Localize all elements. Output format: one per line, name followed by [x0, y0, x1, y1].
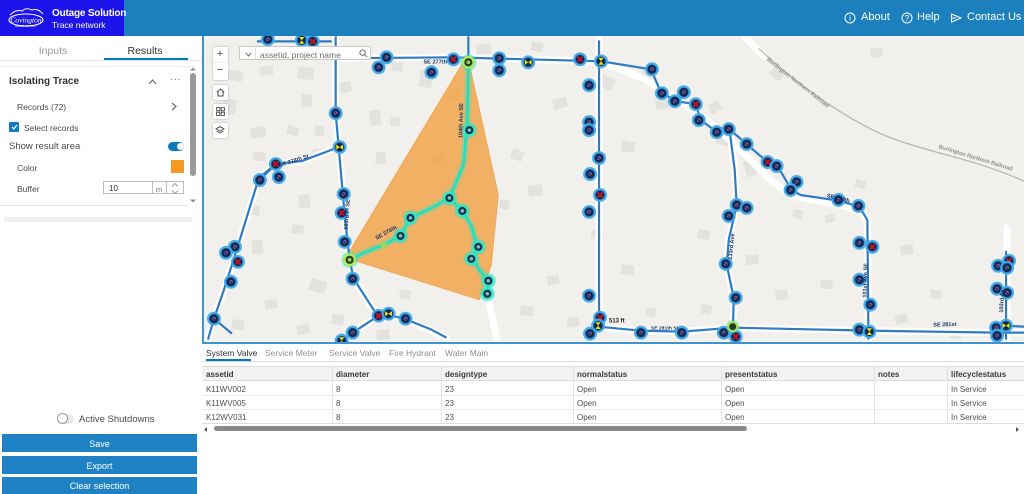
svg-text:101st Ave SE: 101st Ave SE [862, 263, 869, 298]
svg-text:103rd Av: 103rd Av [999, 289, 1006, 313]
svg-text:104th Ave SE: 104th Ave SE [458, 103, 465, 138]
svg-text:Covington: Covington [10, 16, 41, 25]
svg-text:SE 277th: SE 277th [423, 59, 447, 65]
svg-text:SE 281st: SE 281st [933, 322, 957, 329]
svg-text:513 ft: 513 ft [609, 319, 625, 325]
svg-text:?: ? [905, 14, 910, 23]
svg-text:SE 281th St: SE 281th St [651, 326, 679, 332]
svg-text:WATER DISTRICT: WATER DISTRICT [15, 24, 37, 28]
svg-text:i: i [849, 14, 851, 23]
